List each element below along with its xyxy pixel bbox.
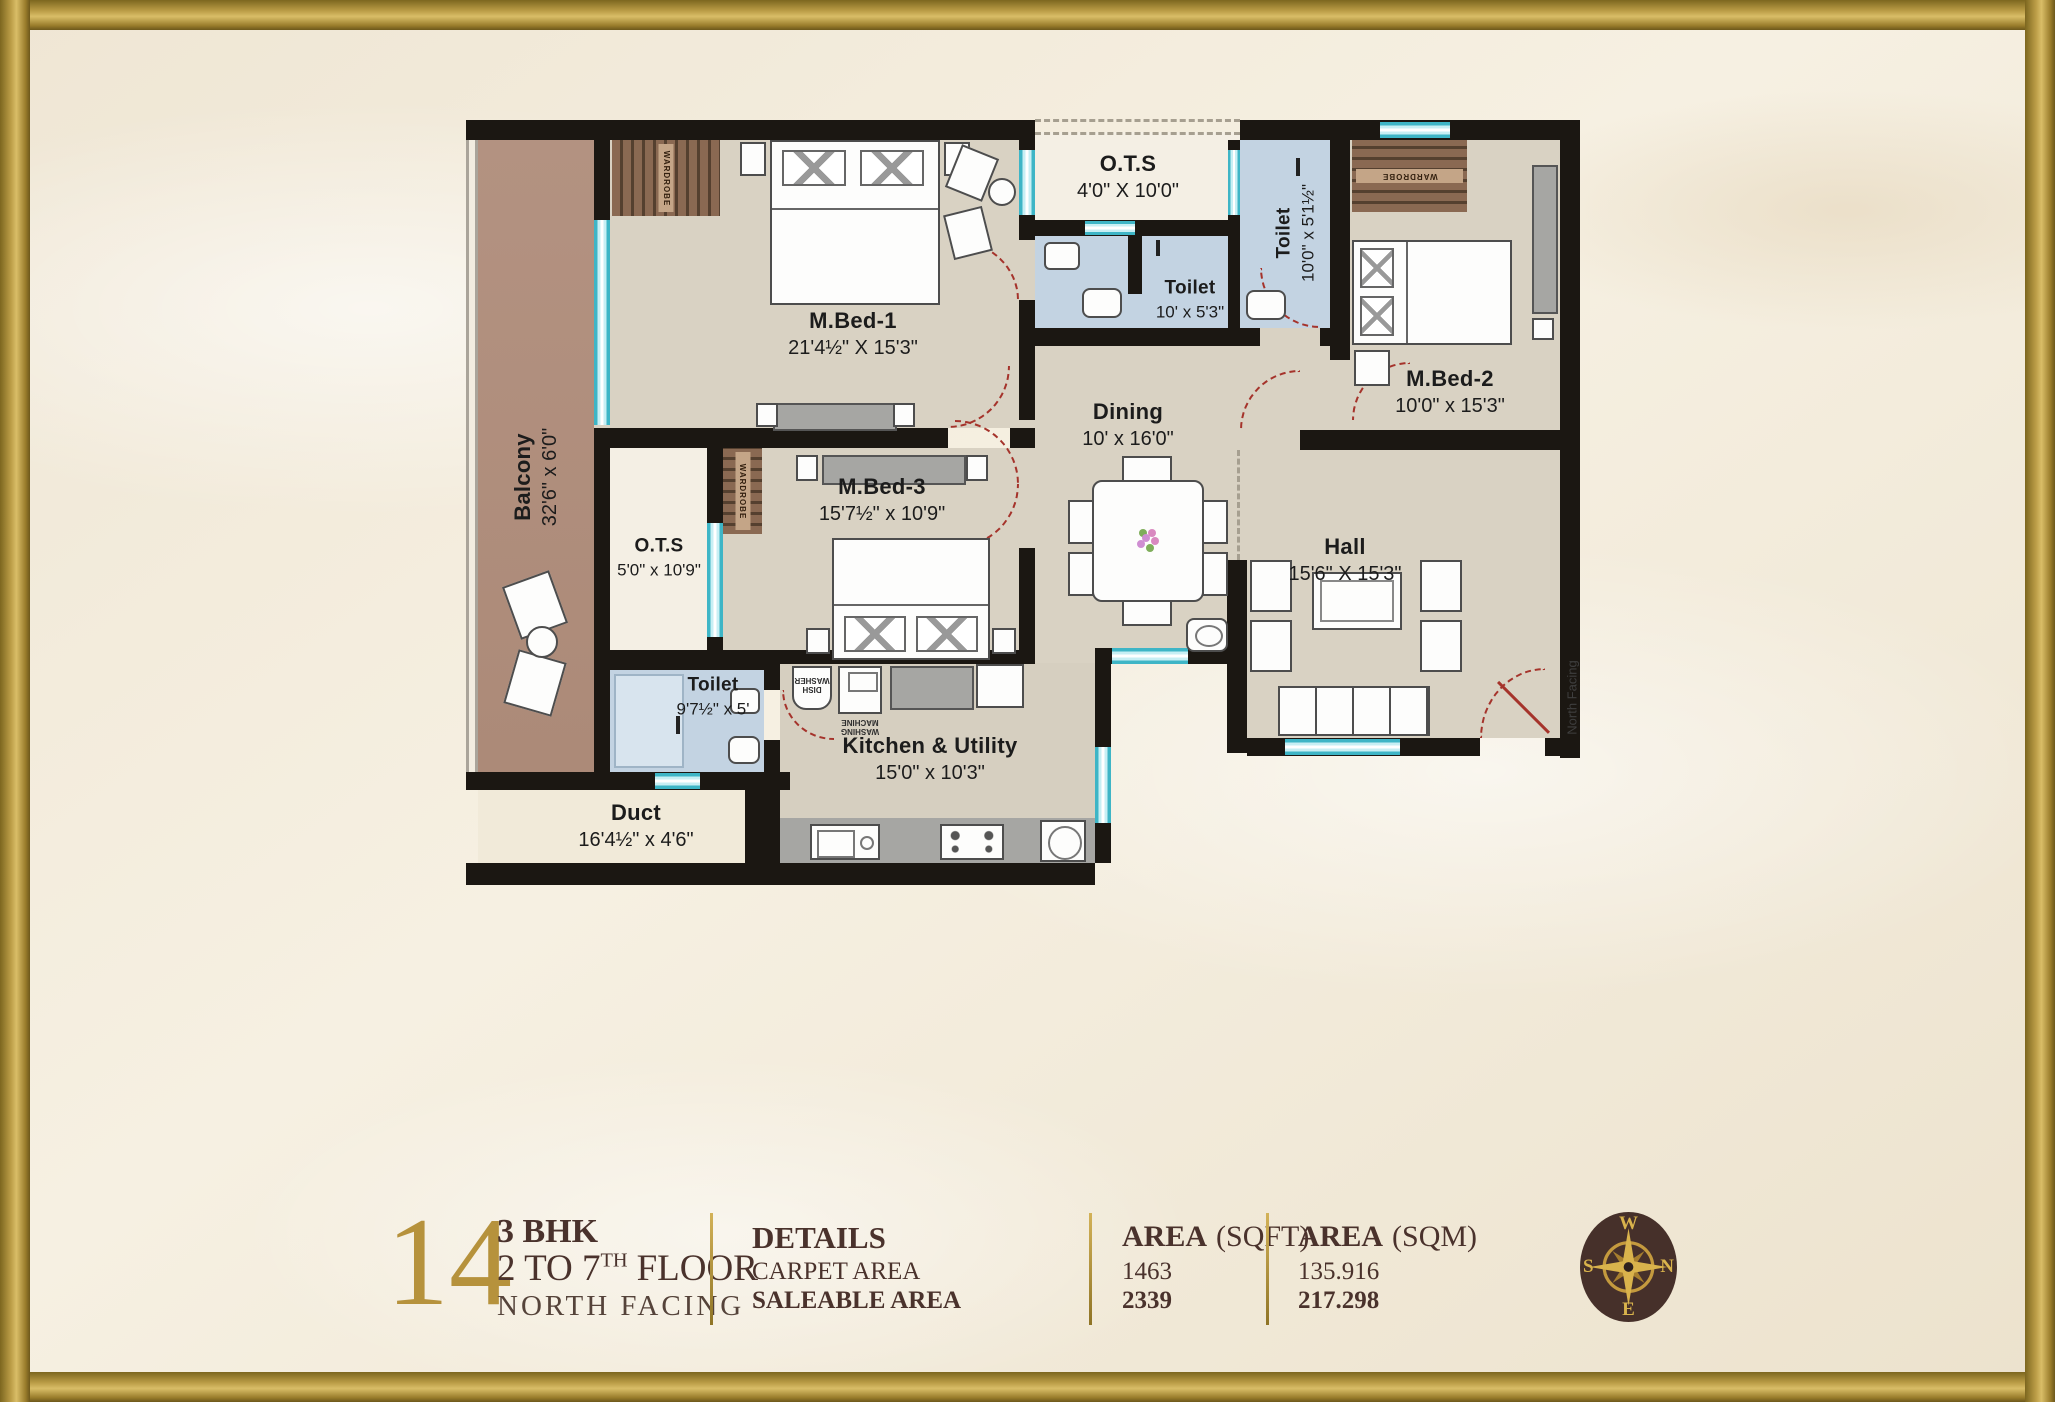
- room-label-toilet-right: Toilet10'0" x 5'1½": [1274, 184, 1319, 282]
- window: [707, 523, 723, 637]
- room-label-balcony: Balcony32'6" x 6'0": [510, 428, 562, 527]
- dining-chair-icon: [1068, 552, 1094, 596]
- room-label-mbed3: M.Bed-315'7½" x 10'9": [819, 474, 945, 526]
- wall: [1128, 236, 1142, 294]
- fridge-icon: [976, 664, 1024, 708]
- flower-centerpiece-icon: [1142, 534, 1150, 542]
- unit-type: 3 BHK: [497, 1213, 598, 1251]
- saleable-area-label: SALEABLE AREA: [752, 1287, 961, 1315]
- room-label-ots-left: O.T.S5'0" x 10'9": [617, 536, 701, 581]
- window: [1019, 150, 1035, 215]
- appliance-icon: [1040, 820, 1086, 862]
- divider: [1089, 1213, 1092, 1325]
- wall: [1300, 430, 1350, 450]
- armchair-icon: [1420, 620, 1462, 672]
- wall: [1019, 300, 1035, 330]
- compass-letter-left: S: [1583, 1256, 1594, 1278]
- dresser-icon: [1532, 165, 1558, 314]
- area-sqft-title: AREA(SQFT): [1122, 1220, 1309, 1254]
- bed-icon: [770, 140, 940, 305]
- compass-star-icon: [1588, 1224, 1669, 1310]
- side-table-icon: [740, 142, 766, 176]
- kitchen-counter-top: [890, 666, 974, 710]
- wall: [1095, 650, 1111, 747]
- hall-entry-patch: [1247, 430, 1300, 450]
- washbasin-icon: [1044, 242, 1080, 270]
- area-sqm-carpet: 135.916: [1298, 1258, 1379, 1286]
- facing: NORTH FACING: [497, 1290, 744, 1323]
- stool-icon: [796, 455, 818, 481]
- washbasin-icon: [1186, 618, 1228, 652]
- unit-number: 14: [386, 1200, 512, 1326]
- area-sqm-title: AREA(SQM): [1298, 1220, 1477, 1254]
- balcony-railing: [466, 140, 478, 772]
- window: [1085, 221, 1135, 235]
- compass-letter-top: W: [1619, 1213, 1638, 1235]
- carpet-area-label: CARPET AREA: [752, 1258, 920, 1286]
- divider: [710, 1213, 713, 1325]
- side-table-icon: [1354, 350, 1390, 386]
- window: [1380, 122, 1450, 138]
- bed-icon: [1352, 240, 1512, 345]
- dish-washer-label: DISH WASHER: [794, 676, 830, 694]
- wardrobe: WARDROBE: [723, 448, 762, 534]
- north-facing-label: North Facing: [1565, 658, 1580, 738]
- room-label-mbed2: M.Bed-210'0" x 15'3": [1395, 366, 1505, 418]
- shower-tray: [614, 674, 684, 768]
- wall: [1019, 548, 1035, 663]
- window: [1112, 648, 1188, 664]
- room-label-dining: Dining10' x 16'0": [1082, 399, 1173, 451]
- sofa-icon: [1278, 686, 1430, 736]
- wardrobe-label: WARDROBE: [662, 150, 671, 206]
- dining-chair-icon: [1122, 456, 1172, 482]
- wall: [1330, 140, 1350, 328]
- floor-plan-page: WARDROBE WARDROBE WARDROBE: [0, 0, 2055, 1402]
- wall: [1019, 330, 1035, 420]
- wall: [1010, 428, 1035, 448]
- hob-icon: [940, 824, 1004, 860]
- window: [1095, 747, 1111, 823]
- dresser-stool-icon: [756, 403, 778, 427]
- wall: [466, 863, 1095, 885]
- shower-icon: [1156, 240, 1160, 256]
- area-sqft-saleable: 2339: [1122, 1287, 1172, 1315]
- wall: [1227, 560, 1247, 753]
- dashed-opening: [1237, 450, 1240, 560]
- wall: [745, 772, 780, 863]
- room-label-toilet-top: Toilet10' x 5'3": [1156, 278, 1224, 323]
- divider: [1266, 1213, 1269, 1325]
- wall: [1035, 220, 1240, 236]
- toilet-wc-icon: [728, 736, 760, 764]
- stool-icon: [966, 455, 988, 481]
- wardrobe-label: WARDROBE: [1382, 172, 1438, 181]
- room-label-kitchen: Kitchen & Utility15'0" x 10'3": [843, 733, 1018, 785]
- room-label-toilet-bottom: Toilet9'7½" x 5': [676, 675, 749, 720]
- window: [655, 773, 700, 789]
- round-table-icon: [988, 178, 1016, 206]
- wall: [594, 428, 610, 772]
- area-sqft-carpet: 1463: [1122, 1258, 1172, 1286]
- armchair-icon: [1420, 560, 1462, 612]
- wall: [594, 428, 948, 448]
- wall: [594, 650, 764, 670]
- dining-chair-icon: [1202, 552, 1228, 596]
- room-label-hall: Hall15'6" X 15'3": [1288, 534, 1401, 586]
- window: [1228, 150, 1240, 215]
- details-title: DETAILS: [752, 1220, 886, 1256]
- toilet-wc-icon: [1246, 290, 1286, 320]
- room-label-duct: Duct16'4½" x 4'6": [578, 800, 693, 852]
- area-sqm-saleable: 217.298: [1298, 1287, 1379, 1315]
- armchair-icon: [1250, 560, 1292, 612]
- dashed-opening: [1035, 119, 1240, 122]
- dresser-icon: [773, 403, 897, 431]
- wall: [1330, 328, 1350, 360]
- wall: [764, 650, 780, 690]
- dining-chair-icon: [1068, 500, 1094, 544]
- compass-rose: W N E S: [1580, 1212, 1677, 1322]
- wall: [1035, 328, 1260, 346]
- dashed-opening: [1035, 132, 1240, 135]
- side-table-icon: [806, 628, 830, 654]
- wardrobe: WARDROBE: [1352, 140, 1467, 212]
- wall: [594, 140, 610, 220]
- floor-plan: WARDROBE WARDROBE WARDROBE: [0, 0, 2055, 1402]
- wall: [1350, 430, 1560, 450]
- wardrobe: WARDROBE: [612, 140, 720, 216]
- wall: [466, 772, 790, 790]
- dining-chair-icon: [1122, 600, 1172, 626]
- compass-letter-bottom: E: [1622, 1299, 1635, 1321]
- bed-icon: [832, 538, 990, 660]
- armchair-icon: [1250, 620, 1292, 672]
- dining-chair-icon: [1202, 500, 1228, 544]
- floor-range: 2 TO 7THFLOOR: [497, 1247, 758, 1290]
- wall: [764, 740, 780, 772]
- compass-letter-right: N: [1660, 1256, 1674, 1278]
- dresser-stool-icon: [893, 403, 915, 427]
- window: [1285, 739, 1400, 755]
- washing-machine-icon: [838, 666, 882, 714]
- stool-icon: [1532, 318, 1554, 340]
- side-table-icon: [992, 628, 1016, 654]
- toilet-wc-icon: [1082, 288, 1122, 318]
- round-table-icon: [526, 626, 558, 658]
- wardrobe-label: WARDROBE: [738, 463, 747, 519]
- wall: [466, 120, 1035, 140]
- kitchen-sink-icon: [810, 824, 880, 860]
- wall: [1095, 823, 1111, 863]
- room-label-mbed1: M.Bed-121'4½" X 15'3": [788, 308, 918, 360]
- room-label-ots-top: O.T.S4'0" X 10'0": [1077, 151, 1179, 203]
- sliding-door: [594, 220, 610, 425]
- shower-icon: [1296, 158, 1300, 176]
